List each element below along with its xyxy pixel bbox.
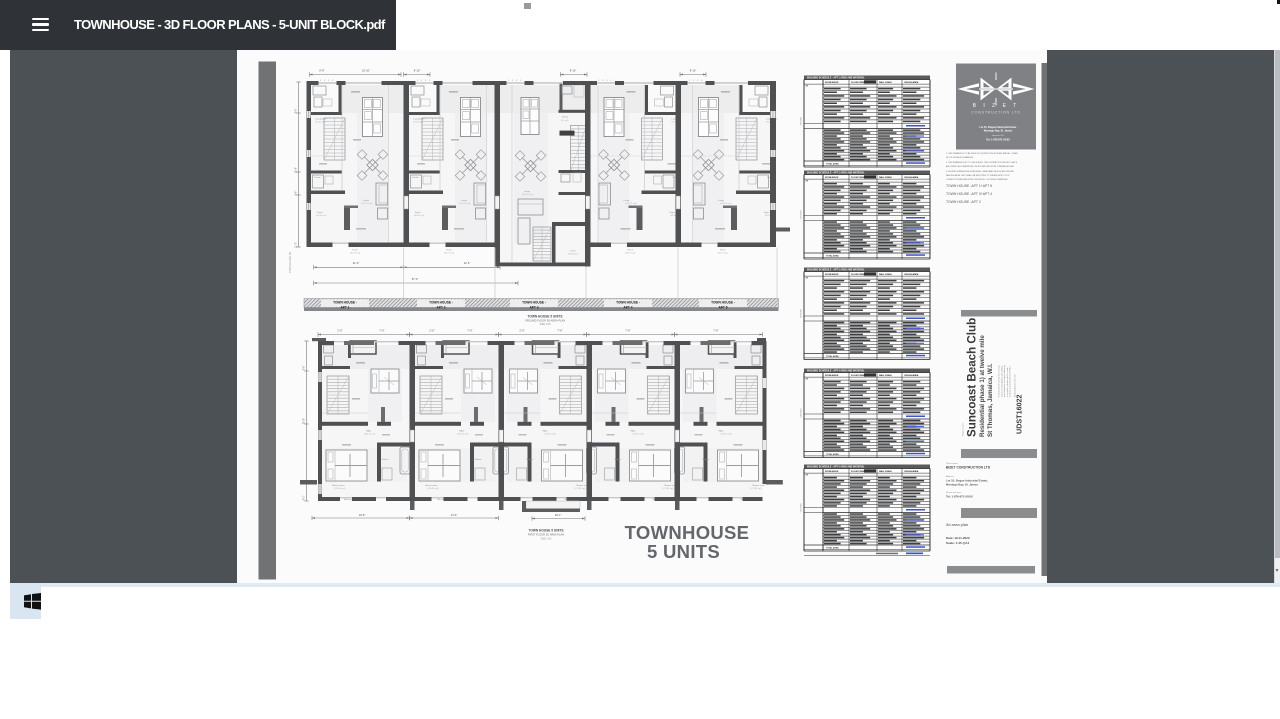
svg-text:Suncoast Beach Club: Suncoast Beach Club <box>966 318 979 437</box>
svg-text:8'-0": 8'-0" <box>304 496 306 501</box>
svg-text:APT 4: APT 4 <box>623 305 632 309</box>
svg-text:TOTAL AREA: TOTAL AREA <box>826 355 839 358</box>
svg-text:AND VERIFY ALL DIMENSIONS ON S: AND VERIFY ALL DIMENSIONS ON SITE BEFORE… <box>946 165 1015 168</box>
svg-text:(173.48 sq.f): (173.48 sq.f) <box>334 488 346 490</box>
svg-text:(40.07 sq.f): (40.07 sq.f) <box>444 253 454 255</box>
svg-text:WALL FINISH: WALL FINISH <box>879 374 892 377</box>
svg-text:Bathrm: Bathrm <box>527 458 534 461</box>
svg-text:3d area plan: 3d area plan <box>946 522 968 527</box>
svg-text:TOWN HOUSE -: TOWN HOUSE - <box>522 301 546 305</box>
svg-text:at the moment 3) Block work fo: at the moment 3) Block work follow <box>1000 365 1003 397</box>
svg-text:Lot 10, Bogue Industrial Estat: Lot 10, Bogue Industrial Estate, <box>979 126 1017 129</box>
svg-text:TOTAL AREA: TOTAL AREA <box>826 163 839 166</box>
svg-text:Master room: Master room <box>332 484 344 487</box>
svg-text:7'-6": 7'-6" <box>625 329 630 333</box>
svg-text:APT 5: APT 5 <box>718 305 727 309</box>
svg-text:8'-10": 8'-10" <box>414 69 421 73</box>
svg-text:Foyer: Foyer <box>764 211 770 214</box>
svg-text:Tel: 1-876-971-XXXX: Tel: 1-876-971-XXXX <box>946 495 973 499</box>
svg-text:APT 3: APT 3 <box>529 305 538 309</box>
svg-text:GROUND: GROUND <box>801 116 803 125</box>
svg-text:(121.09 sq.f): (121.09 sq.f) <box>720 203 732 205</box>
svg-text:(40.07 sq.f): (40.07 sq.f) <box>625 253 635 255</box>
svg-text:Date: 19-11-2020: Date: 19-11-2020 <box>946 536 970 540</box>
svg-text:BUILDING SCHEDULE - APT 1 AREA: BUILDING SCHEDULE - APT 1 AREA AND MATER… <box>807 77 865 80</box>
svg-text:FLOOR FINISH: FLOOR FINISH <box>851 471 866 473</box>
svg-text:7'-6": 7'-6" <box>557 329 562 333</box>
svg-text:Porch: Porch <box>627 249 633 252</box>
svg-text:5 UNITS: 5 UNITS <box>647 541 720 562</box>
svg-text:TOWN HOUSE -APT 3+APT 4: TOWN HOUSE -APT 3+APT 4 <box>946 192 992 196</box>
svg-text:WALL FINISH: WALL FINISH <box>879 81 892 84</box>
svg-text:57'-0": 57'-0" <box>412 277 419 281</box>
svg-text:18'-1": 18'-1" <box>555 513 562 517</box>
svg-text:19'-8": 19'-8" <box>359 513 366 517</box>
svg-text:(35 sq.f): (35 sq.f) <box>561 120 569 122</box>
svg-text:Living: Living <box>461 200 467 202</box>
svg-text:(173.48 sq.f): (173.48 sq.f) <box>427 488 439 490</box>
svg-text:(103.73 sq.f): (103.73 sq.f) <box>545 434 557 436</box>
svg-text:TOTAL AREA: TOTAL AREA <box>826 453 839 456</box>
svg-text:ROOM/SPACE: ROOM/SPACE <box>825 81 839 84</box>
svg-text:Tel: 1-876-971-XXXX: Tel: 1-876-971-XXXX <box>986 138 1010 141</box>
svg-text:FIRST FLOOR 3D AREA PLAN: FIRST FLOOR 3D AREA PLAN <box>528 533 564 537</box>
svg-text:3. FIGURED DIMENSIONS GIVEN I: 3. FIGURED DIMENSIONS GIVEN IN ALL CASES… <box>946 170 1014 173</box>
svg-text:1. THIS DRAWING IS TO BE USED: 1. THIS DRAWING IS TO BE USED IN CONJUNC… <box>946 152 1018 155</box>
svg-text:Residential phase 1) at twelve: Residential phase 1) at twelve mile <box>979 335 986 437</box>
svg-text:CEILING/AREA: CEILING/AREA <box>904 374 919 377</box>
svg-text:ROOM/SPACE: ROOM/SPACE <box>825 470 839 473</box>
svg-text:Porch: Porch <box>720 249 726 252</box>
svg-text:BIZET CONSTRUCTION LTD: BIZET CONSTRUCTION LTD <box>946 466 991 470</box>
svg-text:FLOOR FINISH: FLOOR FINISH <box>851 82 866 84</box>
svg-text:(173.48 sq.f): (173.48 sq.f) <box>751 488 763 490</box>
svg-text:Bathrm: Bathrm <box>615 458 622 461</box>
svg-text:Pantry: Pantry <box>562 116 569 119</box>
svg-text:13'-6": 13'-6" <box>451 513 458 517</box>
svg-text:6'-6": 6'-6" <box>296 191 298 196</box>
svg-text:SIZE 1:50: SIZE 1:50 <box>541 538 552 541</box>
svg-text:Powder: Powder <box>412 177 419 179</box>
svg-text:(40.07 sq.f): (40.07 sq.f) <box>350 253 360 255</box>
svg-text:8'-10": 8'-10" <box>570 69 577 73</box>
svg-text:GROUND FLOOR 3D AREA PLAN: GROUND FLOOR 3D AREA PLAN <box>525 319 565 323</box>
svg-text:Master room: Master room <box>753 484 765 487</box>
svg-text:Bathrm: Bathrm <box>382 458 389 461</box>
svg-text:10'-10": 10'-10" <box>362 69 370 73</box>
svg-text:(103.73 sq.f): (103.73 sq.f) <box>364 434 376 436</box>
svg-text:TOWNHOUSE-3D: TOWNHOUSE-3D <box>288 252 292 273</box>
svg-text:HALL: HALL <box>719 430 725 433</box>
svg-text:(30.00 sq.f): (30.00 sq.f) <box>568 254 578 256</box>
svg-text:TOWN HOUSE -: TOWN HOUSE - <box>616 301 640 305</box>
svg-text:CORRECTION BEFORE WORK PROCEED: CORRECTION BEFORE WORK PROCEEDS. COPYRIG… <box>946 179 1009 181</box>
svg-text:20'-6": 20'-6" <box>296 167 298 173</box>
svg-text:GROUND: GROUND <box>801 503 803 512</box>
svg-text:Living: Living <box>624 200 630 202</box>
svg-text:Scale: 1:45 @A1: Scale: 1:45 @A1 <box>946 541 970 545</box>
svg-text:TOWN HOUSE 5 UNITS: TOWN HOUSE 5 UNITS <box>527 315 562 319</box>
svg-text:Foyer: Foyer <box>415 211 421 214</box>
svg-text:TOWN HOUSE -: TOWN HOUSE - <box>711 301 735 305</box>
svg-text:BUILDING SCHEDULE - APT 3 AREA: BUILDING SCHEDULE - APT 3 AREA AND MATER… <box>807 269 865 272</box>
svg-text:PANCIES ARISE THEY SHALL BE RE: PANCIES ARISE THEY SHALL BE REPORTED TO … <box>946 174 1010 177</box>
svg-text:Foyer: Foyer <box>317 211 323 214</box>
svg-text:(173.48 sq.f): (173.48 sq.f) <box>663 488 675 490</box>
svg-text:Porch: Porch <box>570 250 576 253</box>
svg-text:TOWN HOUSE -APT 1+APT 5: TOWN HOUSE -APT 1+APT 5 <box>946 184 992 188</box>
svg-text:TOTAL AREA: TOTAL AREA <box>826 547 839 550</box>
svg-text:APT 2: APT 2 <box>436 305 445 309</box>
svg-text:HALL: HALL <box>459 430 465 433</box>
svg-text:TOTAL AREA: TOTAL AREA <box>826 255 839 258</box>
svg-text:Montego Bay, St. James: Montego Bay, St. James <box>946 482 978 486</box>
svg-text:HALL: HALL <box>543 430 549 433</box>
svg-text:Living: Living <box>718 200 724 202</box>
svg-text:GROUND: GROUND <box>801 408 803 417</box>
svg-text:Montego Bay, St. James: Montego Bay, St. James <box>984 130 1013 133</box>
svg-text:2'-0": 2'-0" <box>337 329 342 333</box>
svg-text:TOWN HOUSE 5 UNITS: TOWN HOUSE 5 UNITS <box>528 529 563 533</box>
svg-text:8'-10": 8'-10" <box>690 69 697 73</box>
svg-text:Powder: Powder <box>314 177 321 179</box>
svg-text:BUILDING SCHEDULE - APT 2 AREA: BUILDING SCHEDULE - APT 2 AREA AND MATER… <box>807 172 865 175</box>
svg-text:Living: Living <box>363 200 369 202</box>
svg-text:SIZE 1:50: SIZE 1:50 <box>540 323 551 326</box>
svg-text:Foyer: Foyer <box>670 211 676 214</box>
svg-text:FLOOR FINISH: FLOOR FINISH <box>851 177 866 179</box>
svg-text:work follow the site layout re: work follow the site layout reflecting <box>1003 366 1006 397</box>
svg-text:at all the parcel that the Lot: at all the parcel that the Lots Plates <box>1009 366 1012 397</box>
svg-text:CEILING/AREA: CEILING/AREA <box>904 81 919 84</box>
svg-text:(121.09 sq.f): (121.09 sq.f) <box>459 203 471 205</box>
svg-text:HALL: HALL <box>366 430 372 433</box>
svg-text:(173.48 sq.f): (173.48 sq.f) <box>575 488 587 490</box>
svg-text:TOWNHOUSE: TOWNHOUSE <box>625 522 750 543</box>
svg-text:ROOM/SPACE: ROOM/SPACE <box>825 374 839 377</box>
svg-text:Drawing Number also link: Drawing Number also link <box>1015 374 1017 397</box>
svg-text:7'-6": 7'-6" <box>467 329 472 333</box>
svg-text:BUILDING SCHEDULE - APT 4 AREA: BUILDING SCHEDULE - APT 4 AREA AND MATER… <box>807 370 865 373</box>
svg-text:GROUND: GROUND <box>801 309 803 318</box>
svg-text:WALL FINISH: WALL FINISH <box>879 470 892 473</box>
svg-text:Project name: Project name <box>962 422 965 436</box>
svg-text:7'-6": 7'-6" <box>713 329 718 333</box>
svg-text:TOWN HOUSE -: TOWN HOUSE - <box>429 301 453 305</box>
svg-text:GROUND: GROUND <box>801 210 803 219</box>
svg-text:Bathrm: Bathrm <box>703 458 710 461</box>
svg-text:2'-0": 2'-0" <box>429 329 434 333</box>
svg-text:FLOOR FINISH: FLOOR FINISH <box>851 274 866 276</box>
svg-text:TOWN HOUSE -APT 2: TOWN HOUSE -APT 2 <box>946 200 981 204</box>
svg-text:SET OF DETAILED DRAWINGS.: SET OF DETAILED DRAWINGS. <box>946 156 974 159</box>
svg-text:2'-0": 2'-0" <box>519 329 524 333</box>
svg-text:FLOOR FINISH: FLOOR FINISH <box>851 375 866 377</box>
svg-text:6'-6": 6'-6" <box>296 109 298 114</box>
svg-text:HALL: HALL <box>631 430 637 433</box>
svg-text:(60.50 sq.f): (60.50 sq.f) <box>414 215 424 217</box>
svg-text:CONSTRUCTION LTD: CONSTRUCTION LTD <box>971 111 1020 115</box>
svg-text:21'-0": 21'-0" <box>353 261 360 265</box>
svg-text:Porch: Porch <box>446 249 452 252</box>
svg-text:Transparent 36 sets for the mo: Transparent 36 sets for the moment <box>998 365 1001 397</box>
svg-text:(121.09 sq.f): (121.09 sq.f) <box>361 203 373 205</box>
svg-text:WALL FINISH: WALL FINISH <box>879 176 892 179</box>
svg-text:8'-8": 8'-8" <box>319 69 324 73</box>
svg-text:or to whole a drawn site for r: or to whole a drawn site for roads <box>1006 367 1009 397</box>
svg-text:B I Z E T: B I Z E T <box>973 103 1020 109</box>
svg-text:CEILING/AREA: CEILING/AREA <box>904 176 919 179</box>
svg-text:ROOM/SPACE: ROOM/SPACE <box>825 273 839 276</box>
svg-text:Porch: Porch <box>352 249 358 252</box>
svg-text:22'-6": 22'-6" <box>464 261 471 265</box>
svg-text:6'-6": 6'-6" <box>304 366 306 371</box>
svg-text:Balcony: Balcony <box>344 499 353 501</box>
svg-text:CEILING/AREA: CEILING/AREA <box>904 470 919 473</box>
svg-text:20'-6": 20'-6" <box>304 418 306 424</box>
svg-text:St Thomas, Jamaica, W.I.: St Thomas, Jamaica, W.I. <box>987 363 994 437</box>
svg-text:Bathrm: Bathrm <box>475 458 482 461</box>
svg-text:7'-6": 7'-6" <box>379 329 384 333</box>
svg-text:TOWN HOUSE -: TOWN HOUSE - <box>333 301 357 305</box>
svg-text:Living: Living <box>524 191 530 193</box>
svg-text:WALL FINISH: WALL FINISH <box>879 273 892 276</box>
svg-text:Jamaica W.I.: Jamaica W.I. <box>992 135 1005 137</box>
svg-text:ROOM/SPACE: ROOM/SPACE <box>825 176 839 179</box>
svg-text:(103.73 sq.f): (103.73 sq.f) <box>721 434 733 436</box>
svg-text:Master room: Master room <box>425 484 437 487</box>
svg-text:11'-0": 11'-0" <box>296 242 298 248</box>
svg-text:UDST16022: UDST16022 <box>1015 394 1024 434</box>
svg-text:(60.50 sq.f): (60.50 sq.f) <box>316 215 326 217</box>
svg-text:(205.12 sq.f): (205.12 sq.f) <box>522 194 534 196</box>
svg-text:APT 1: APT 1 <box>340 305 349 309</box>
svg-text:(103.73 sq.f): (103.73 sq.f) <box>633 434 645 436</box>
svg-text:(121.09 sq.f): (121.09 sq.f) <box>626 203 638 205</box>
svg-text:2. THIS DRAWING IS NOT TO BE: 2. THIS DRAWING IS NOT TO BE SCALED. THE… <box>946 161 1018 164</box>
svg-text:(40.07 sq.f): (40.07 sq.f) <box>718 253 728 255</box>
svg-text:CEILING/AREA: CEILING/AREA <box>904 273 919 276</box>
svg-text:(103.73 sq.f): (103.73 sq.f) <box>457 434 469 436</box>
svg-text:BUILDING SCHEDULE - APT 5 AREA: BUILDING SCHEDULE - APT 5 AREA AND MATER… <box>807 466 865 469</box>
